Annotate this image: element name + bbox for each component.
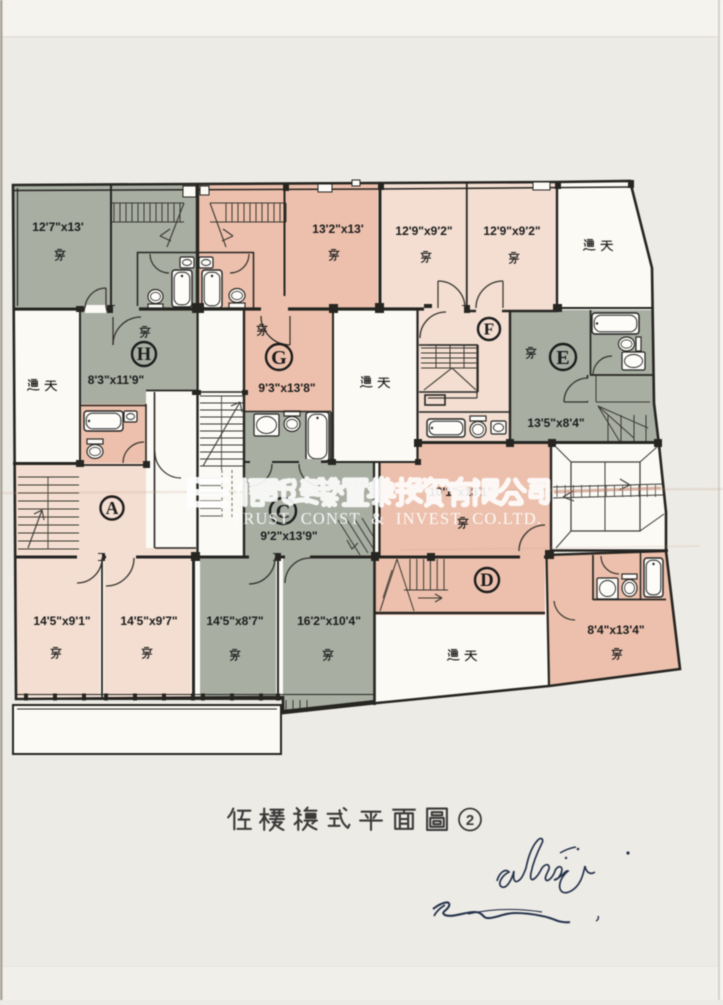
svg-text:13'5"x8'4": 13'5"x8'4" (527, 416, 584, 430)
svg-text:TRUST CONST & INVEST CO.LT: TRUST CONST & INVEST CO.LTD. (232, 509, 541, 528)
svg-text:14'5"x9'7": 14'5"x9'7" (120, 614, 177, 628)
svg-text:F: F (484, 320, 494, 339)
svg-text:12'9"x9'2": 12'9"x9'2" (483, 224, 540, 238)
svg-text:8'3"x11'9": 8'3"x11'9" (88, 373, 144, 387)
svg-text:H: H (137, 344, 152, 365)
svg-text:14'5"x9'1": 14'5"x9'1" (33, 614, 90, 628)
svg-text:G: G (271, 347, 287, 369)
svg-text:13'2"x13': 13'2"x13' (312, 222, 364, 236)
svg-text:D: D (480, 570, 493, 591)
svg-text:E: E (556, 347, 569, 369)
svg-text:16'2"x10'4": 16'2"x10'4" (297, 614, 361, 628)
svg-text:8'4"x13'4": 8'4"x13'4" (587, 623, 644, 637)
svg-text:12'7"x13': 12'7"x13' (32, 220, 84, 234)
svg-text:A: A (106, 498, 119, 518)
svg-text:9'2"x13'9": 9'2"x13'9" (260, 529, 317, 543)
svg-text:9'3"x13'8": 9'3"x13'8" (258, 381, 315, 395)
svg-text:14'5"x8'7": 14'5"x8'7" (206, 614, 263, 628)
svg-text:12'9"x9'2": 12'9"x9'2" (395, 224, 452, 238)
svg-text:2: 2 (466, 812, 474, 829)
